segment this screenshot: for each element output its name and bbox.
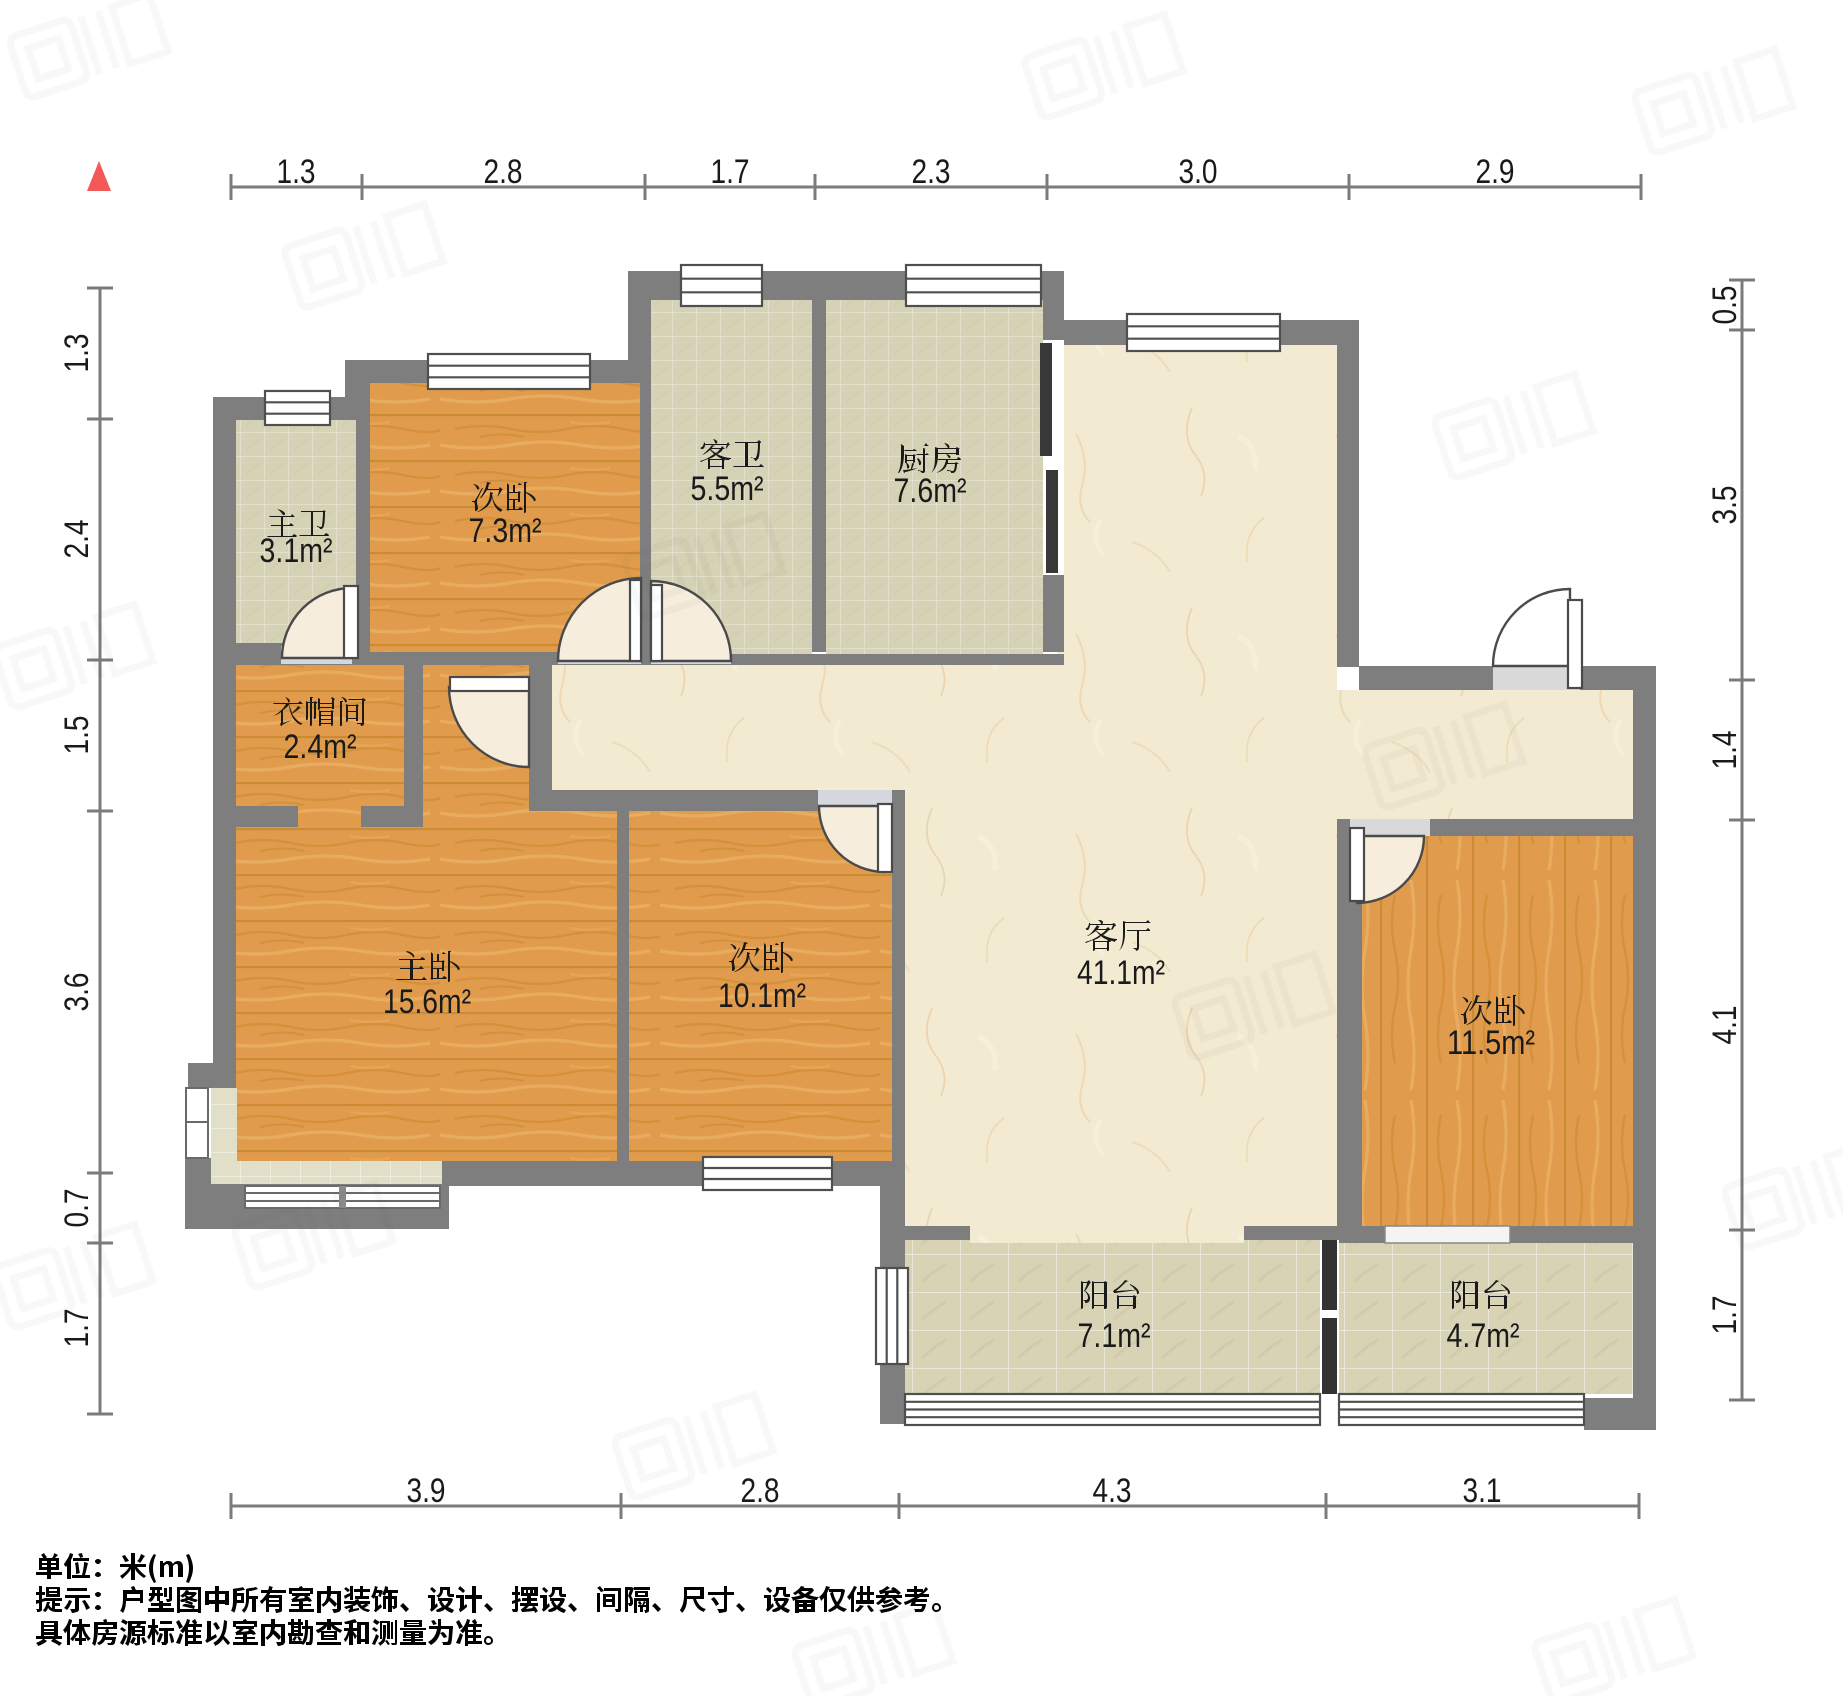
svg-text:2.8: 2.8: [484, 153, 523, 191]
svg-text:1.4: 1.4: [1706, 731, 1744, 770]
svg-text:2.9: 2.9: [1476, 153, 1515, 191]
svg-text:3.6: 3.6: [58, 973, 96, 1012]
svg-text:2.4m²: 2.4m²: [284, 728, 357, 766]
svg-text:15.6m²: 15.6m²: [383, 983, 471, 1021]
svg-text:1.3: 1.3: [277, 153, 316, 191]
svg-text:3.5: 3.5: [1706, 486, 1744, 525]
svg-text:1.5: 1.5: [58, 716, 96, 755]
svg-text:4.7m²: 4.7m²: [1447, 1317, 1520, 1355]
svg-text:41.1m²: 41.1m²: [1077, 954, 1165, 992]
svg-text:2.8: 2.8: [741, 1472, 780, 1510]
svg-text:1.7: 1.7: [1706, 1296, 1744, 1335]
svg-text:11.5m²: 11.5m²: [1447, 1024, 1535, 1062]
svg-text:4.3: 4.3: [1093, 1472, 1132, 1510]
svg-text:0.7: 0.7: [58, 1189, 96, 1228]
svg-text:3.1m²: 3.1m²: [260, 532, 333, 570]
svg-text:1.3: 1.3: [58, 334, 96, 373]
svg-text:2.4: 2.4: [58, 520, 96, 559]
svg-text:1.7: 1.7: [711, 153, 750, 191]
svg-text:2.3: 2.3: [912, 153, 951, 191]
svg-text:10.1m²: 10.1m²: [718, 977, 806, 1015]
svg-text:5.5m²: 5.5m²: [691, 470, 764, 508]
svg-text:3.1: 3.1: [1463, 1472, 1502, 1510]
svg-text:7.3m²: 7.3m²: [469, 512, 542, 550]
svg-text:3.9: 3.9: [407, 1472, 446, 1510]
svg-text:3.0: 3.0: [1179, 153, 1218, 191]
svg-text:7.1m²: 7.1m²: [1078, 1317, 1151, 1355]
svg-text:4.1: 4.1: [1706, 1006, 1744, 1045]
svg-text:7.6m²: 7.6m²: [894, 472, 967, 510]
svg-text:0.5: 0.5: [1706, 286, 1744, 325]
